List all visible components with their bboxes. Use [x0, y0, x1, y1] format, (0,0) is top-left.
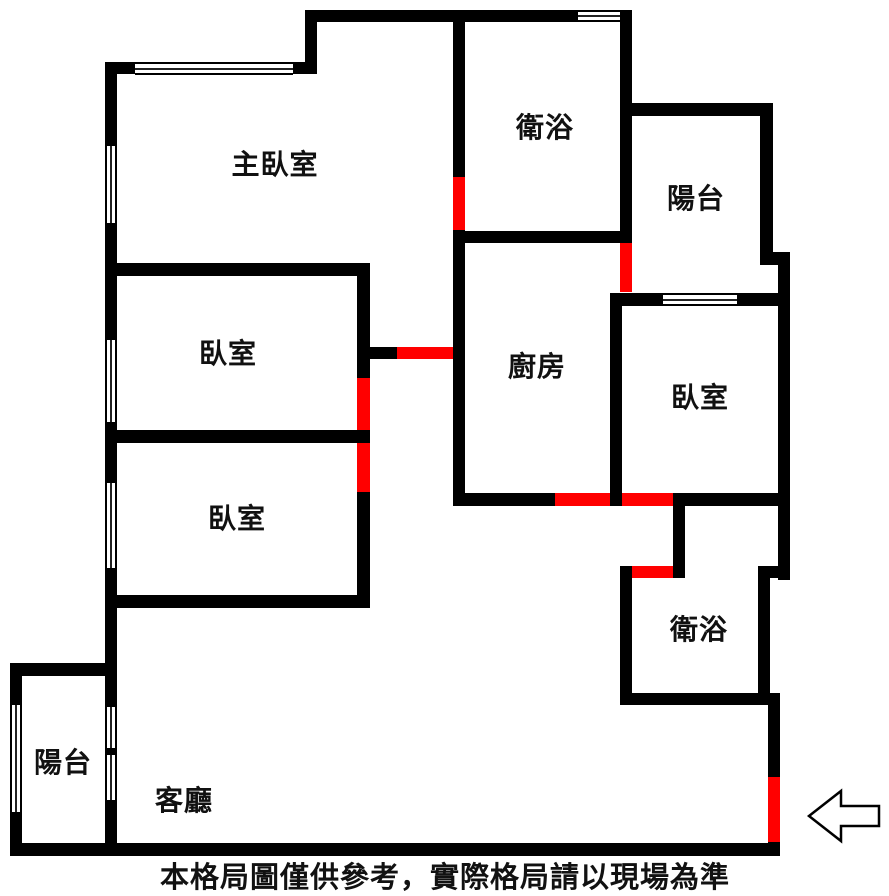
door-opening	[357, 378, 370, 430]
wall	[758, 566, 790, 578]
floor-plan: 主臥室衛浴陽台臥室廚房臥室臥室衛浴陽台客廳	[0, 0, 889, 896]
bedroom-left-1-label: 臥室	[199, 332, 257, 372]
door-opening	[622, 493, 673, 506]
wall	[758, 566, 770, 705]
window	[105, 146, 117, 223]
bathroom-top-label: 衛浴	[516, 106, 574, 146]
master-bedroom-label: 主臥室	[231, 143, 318, 183]
bedroom-left-2-label: 臥室	[208, 497, 266, 537]
wall	[105, 263, 370, 276]
window	[105, 707, 117, 748]
window	[105, 483, 117, 568]
wall	[10, 663, 117, 676]
bathroom-bottom-label: 衛浴	[670, 608, 728, 648]
entrance-arrow-icon	[806, 788, 882, 844]
window	[105, 340, 117, 422]
door-opening	[357, 443, 370, 492]
wall	[357, 263, 370, 608]
kitchen-label: 廚房	[508, 345, 566, 385]
wall	[620, 566, 632, 705]
door-opening	[620, 243, 632, 292]
balcony-bottom-label: 陽台	[34, 741, 92, 781]
wall	[357, 347, 397, 359]
wall	[465, 231, 632, 243]
window	[578, 10, 620, 22]
window	[10, 705, 22, 812]
wall	[305, 10, 317, 74]
wall	[105, 430, 370, 443]
window	[135, 62, 293, 75]
window	[663, 293, 737, 306]
window	[105, 755, 117, 800]
living-room-label: 客廳	[155, 779, 213, 819]
wall	[760, 103, 773, 265]
disclaimer-caption: 本格局圖僅供參考，實際格局請以現場為準	[160, 854, 730, 896]
wall	[620, 10, 632, 243]
wall	[620, 103, 773, 116]
wall	[105, 595, 370, 608]
bedroom-right-label: 臥室	[671, 376, 729, 416]
door-opening	[555, 493, 610, 506]
door-opening	[768, 777, 780, 842]
wall	[620, 693, 770, 705]
wall	[610, 293, 622, 506]
balcony-top-label: 陽台	[667, 177, 725, 217]
floor-plan-canvas: 主臥室衛浴陽台臥室廚房臥室臥室衛浴陽台客廳 本格局圖僅供參考，實際格局請以現場為…	[0, 0, 889, 896]
wall	[453, 10, 465, 503]
door-opening	[453, 177, 465, 230]
door-opening	[397, 347, 453, 359]
door-opening	[632, 566, 673, 578]
